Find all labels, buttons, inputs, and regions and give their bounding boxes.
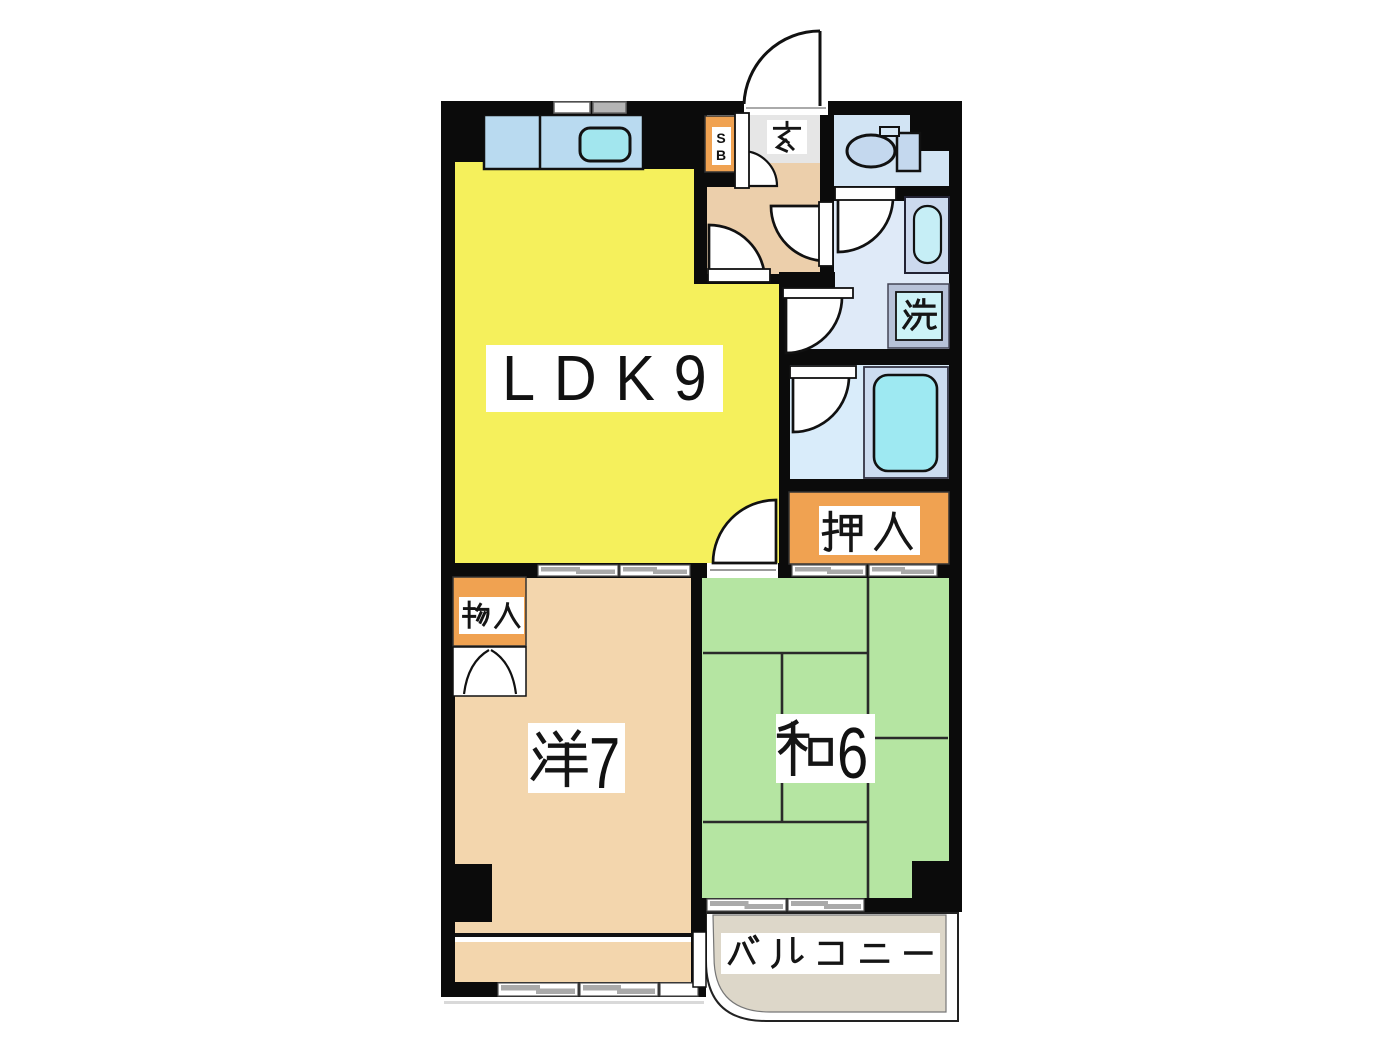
svg-text:6: 6 (837, 713, 868, 793)
svg-text:S: S (716, 130, 725, 146)
svg-text:7: 7 (589, 723, 620, 803)
svg-text:B: B (716, 147, 726, 163)
svg-text:LDK9: LDK9 (502, 343, 725, 414)
